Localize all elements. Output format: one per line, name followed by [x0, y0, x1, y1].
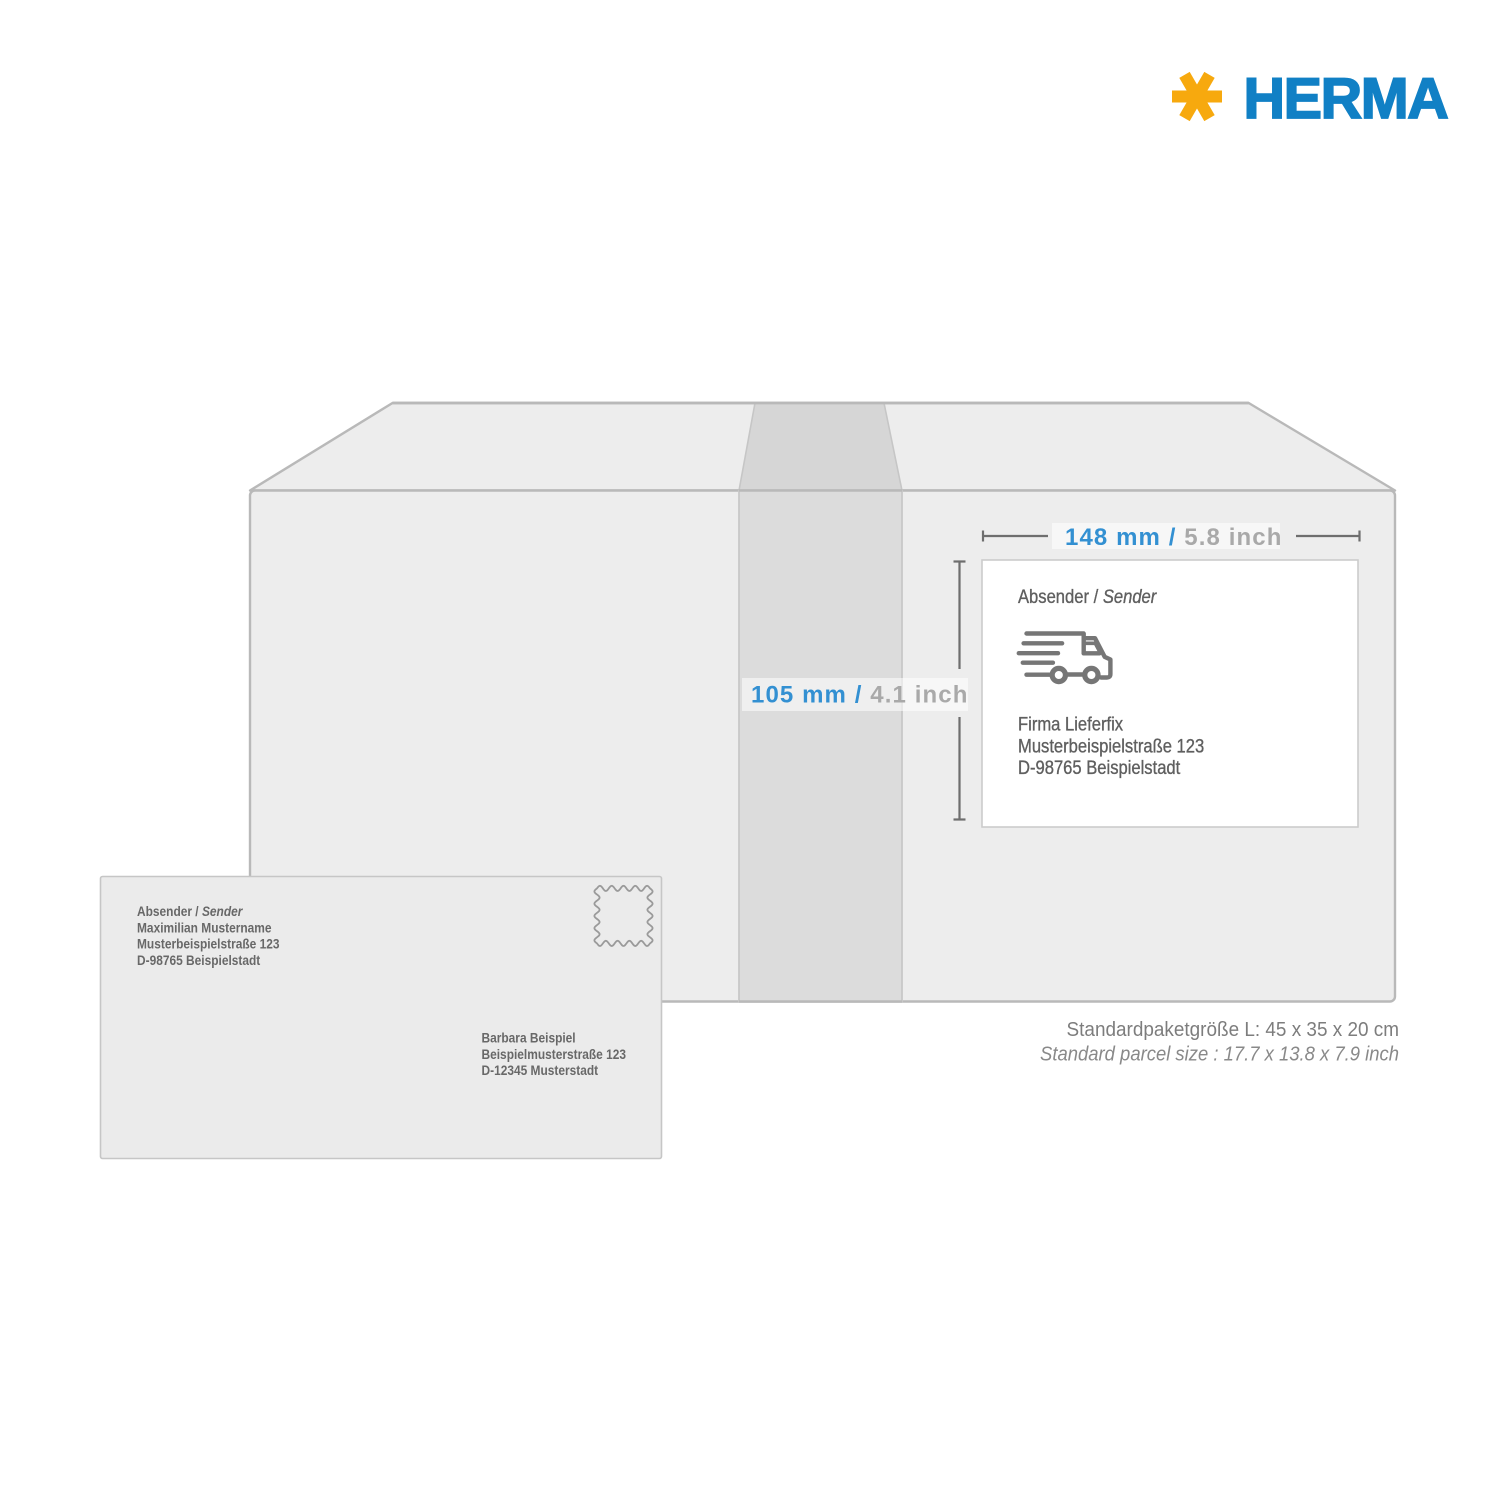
svg-text:Standard parcel size : 17.7 x: Standard parcel size : 17.7 x 13.8 x 7.9…: [1040, 1043, 1399, 1066]
svg-text:Absender / Sender: Absender / Sender: [137, 903, 243, 919]
svg-text:Firma Lieferfix: Firma Lieferfix: [1018, 713, 1123, 734]
svg-text:D-98765 Beispielstadt: D-98765 Beispielstadt: [1018, 757, 1180, 778]
svg-text:Absender / Sender: Absender / Sender: [1018, 586, 1157, 607]
svg-text:D-12345 Musterstadt: D-12345 Musterstadt: [482, 1062, 599, 1078]
svg-text:HERMA: HERMA: [1244, 67, 1449, 131]
svg-text:Beispielmusterstraße 123: Beispielmusterstraße 123: [482, 1046, 627, 1062]
svg-text:Maximilian Mustername: Maximilian Mustername: [137, 919, 272, 935]
svg-text:Musterbeispielstraße 123: Musterbeispielstraße 123: [1018, 735, 1204, 756]
svg-text:Standardpaketgröße L: 45 x 35: Standardpaketgröße L: 45 x 35 x 20 cm: [1067, 1018, 1399, 1041]
svg-text:148 mm / 5.8 inch: 148 mm / 5.8 inch: [1065, 524, 1282, 551]
svg-text:D-98765 Beispielstadt: D-98765 Beispielstadt: [137, 952, 261, 968]
svg-text:Musterbeispielstraße 123: Musterbeispielstraße 123: [137, 936, 279, 952]
svg-text:Barbara Beispiel: Barbara Beispiel: [482, 1030, 576, 1046]
svg-text:105 mm / 4.1 inch: 105 mm / 4.1 inch: [751, 682, 968, 709]
